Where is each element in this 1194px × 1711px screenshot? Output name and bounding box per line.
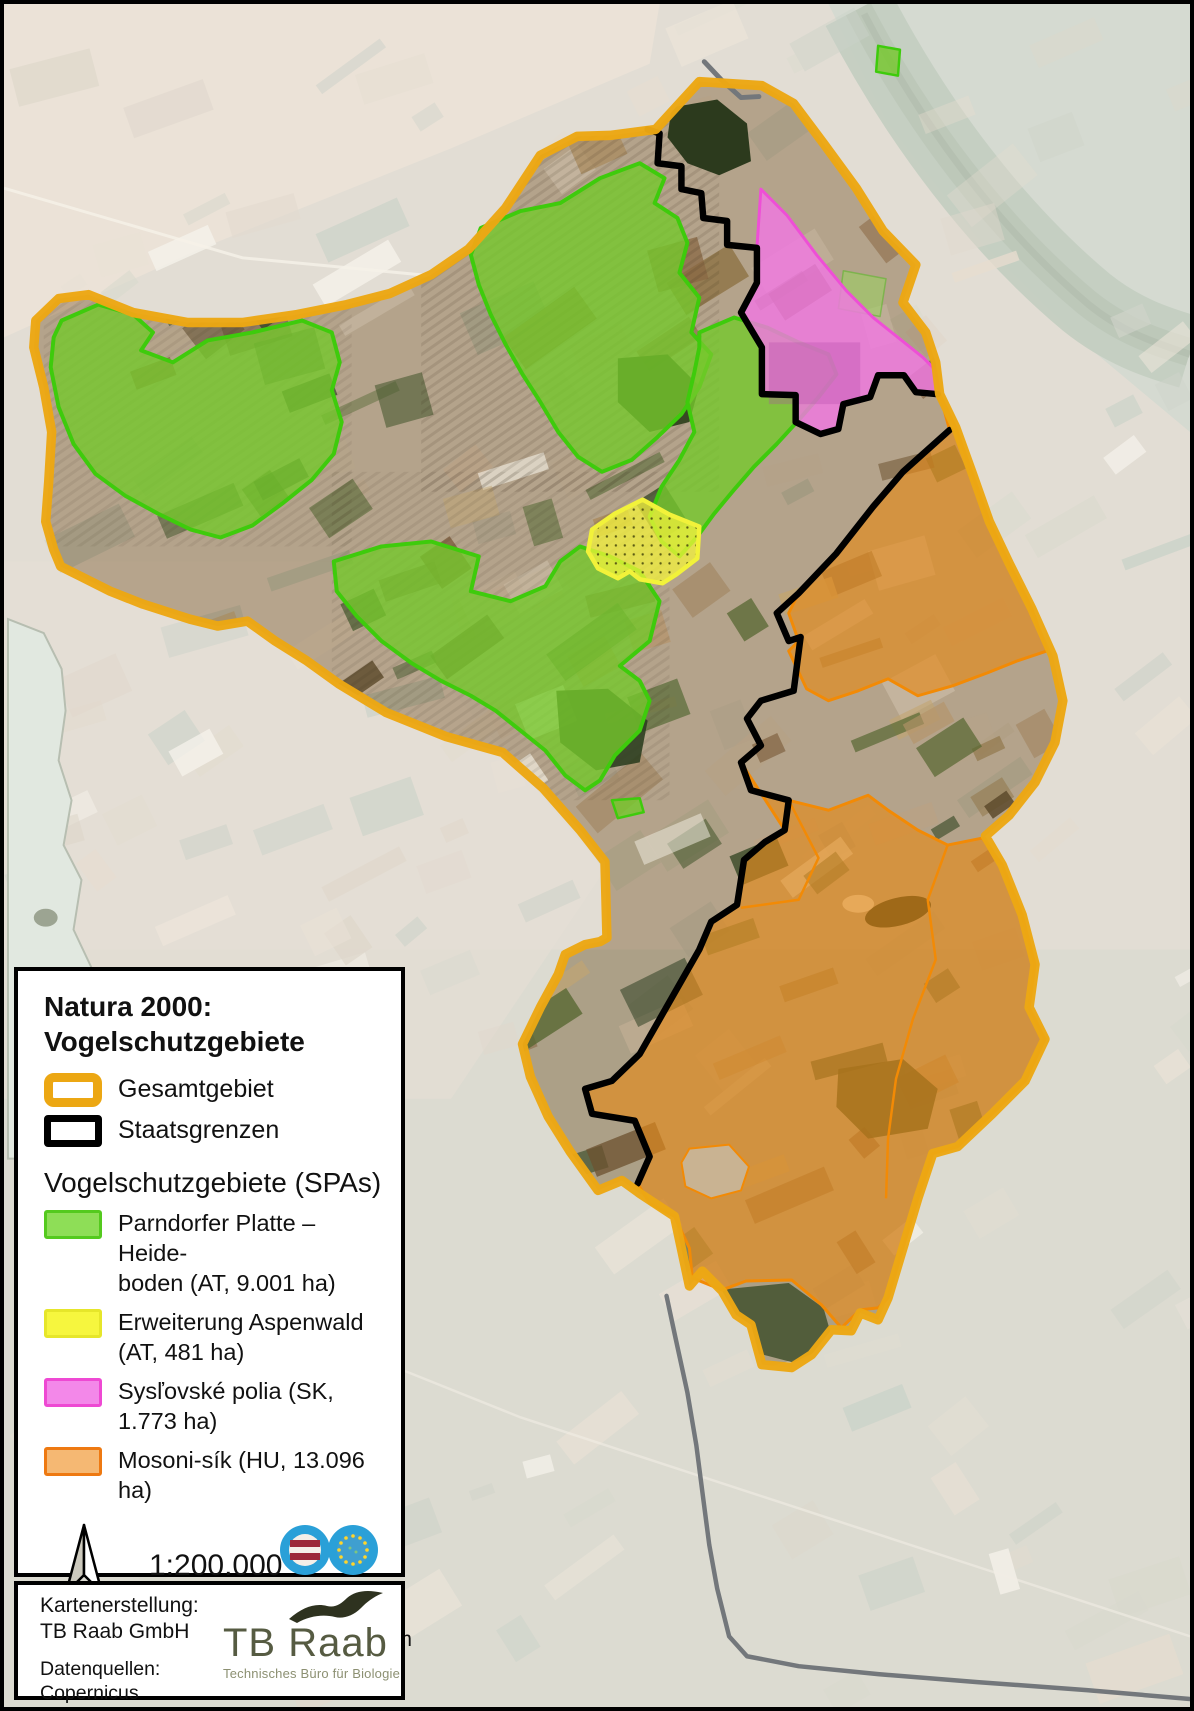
legend-item-aspenwald: Erweiterung Aspenwald (AT, 481 ha) bbox=[44, 1307, 389, 1367]
credits-panel: Kartenerstellung: TB Raab GmbH Datenquel… bbox=[14, 1581, 405, 1700]
legend-panel: Natura 2000: Vogelschutzgebiete Gesamtge… bbox=[14, 967, 405, 1577]
made-by: TB Raab GmbH bbox=[40, 1619, 240, 1645]
legend-item-mosoni: Mosoni-sík (HU, 13.096 ha) bbox=[44, 1445, 389, 1505]
mosoni-swatch bbox=[44, 1447, 102, 1476]
map-viewport: Natura 2000: Vogelschutzgebiete Gesamtge… bbox=[0, 0, 1194, 1711]
legend-item-parndorfer: Parndorfer Platte – Heide- boden (AT, 9.… bbox=[44, 1208, 389, 1298]
spa-heading: Vogelschutzgebiete (SPAs) bbox=[44, 1167, 389, 1199]
syslovske-swatch bbox=[44, 1378, 102, 1407]
logo-subtitle: Technisches Büro für Biologie bbox=[223, 1666, 395, 1681]
data-sources-line2: Sentinel-Daten 2022, EEA bbox=[40, 1705, 240, 1711]
legend-item-gesamtgebiet: Gesamtgebiet bbox=[44, 1073, 389, 1107]
scale-ratio: 1:200.000 bbox=[149, 1549, 282, 1583]
fachverband-badge-icons bbox=[277, 1523, 381, 1577]
parndorfer-swatch bbox=[44, 1210, 102, 1239]
aspenwald-swatch bbox=[44, 1309, 102, 1338]
made-by-label: Kartenerstellung: bbox=[40, 1593, 240, 1619]
legend-item-staatsgrenzen: Staatsgrenzen bbox=[44, 1115, 389, 1147]
gesamtgebiet-swatch bbox=[44, 1073, 102, 1107]
legend-title: Natura 2000: Vogelschutzgebiete bbox=[44, 989, 389, 1060]
logo-wordmark: TB Raab bbox=[223, 1623, 395, 1663]
legend-item-syslovske: Sysľovské polia (SK, 1.773 ha) bbox=[44, 1376, 389, 1436]
data-sources-line1: Datenquellen: Copernicus bbox=[40, 1658, 240, 1705]
staatsgrenzen-swatch bbox=[44, 1115, 102, 1147]
tb-raab-logo: TB Raab Technisches Büro für Biologie bbox=[223, 1589, 395, 1681]
